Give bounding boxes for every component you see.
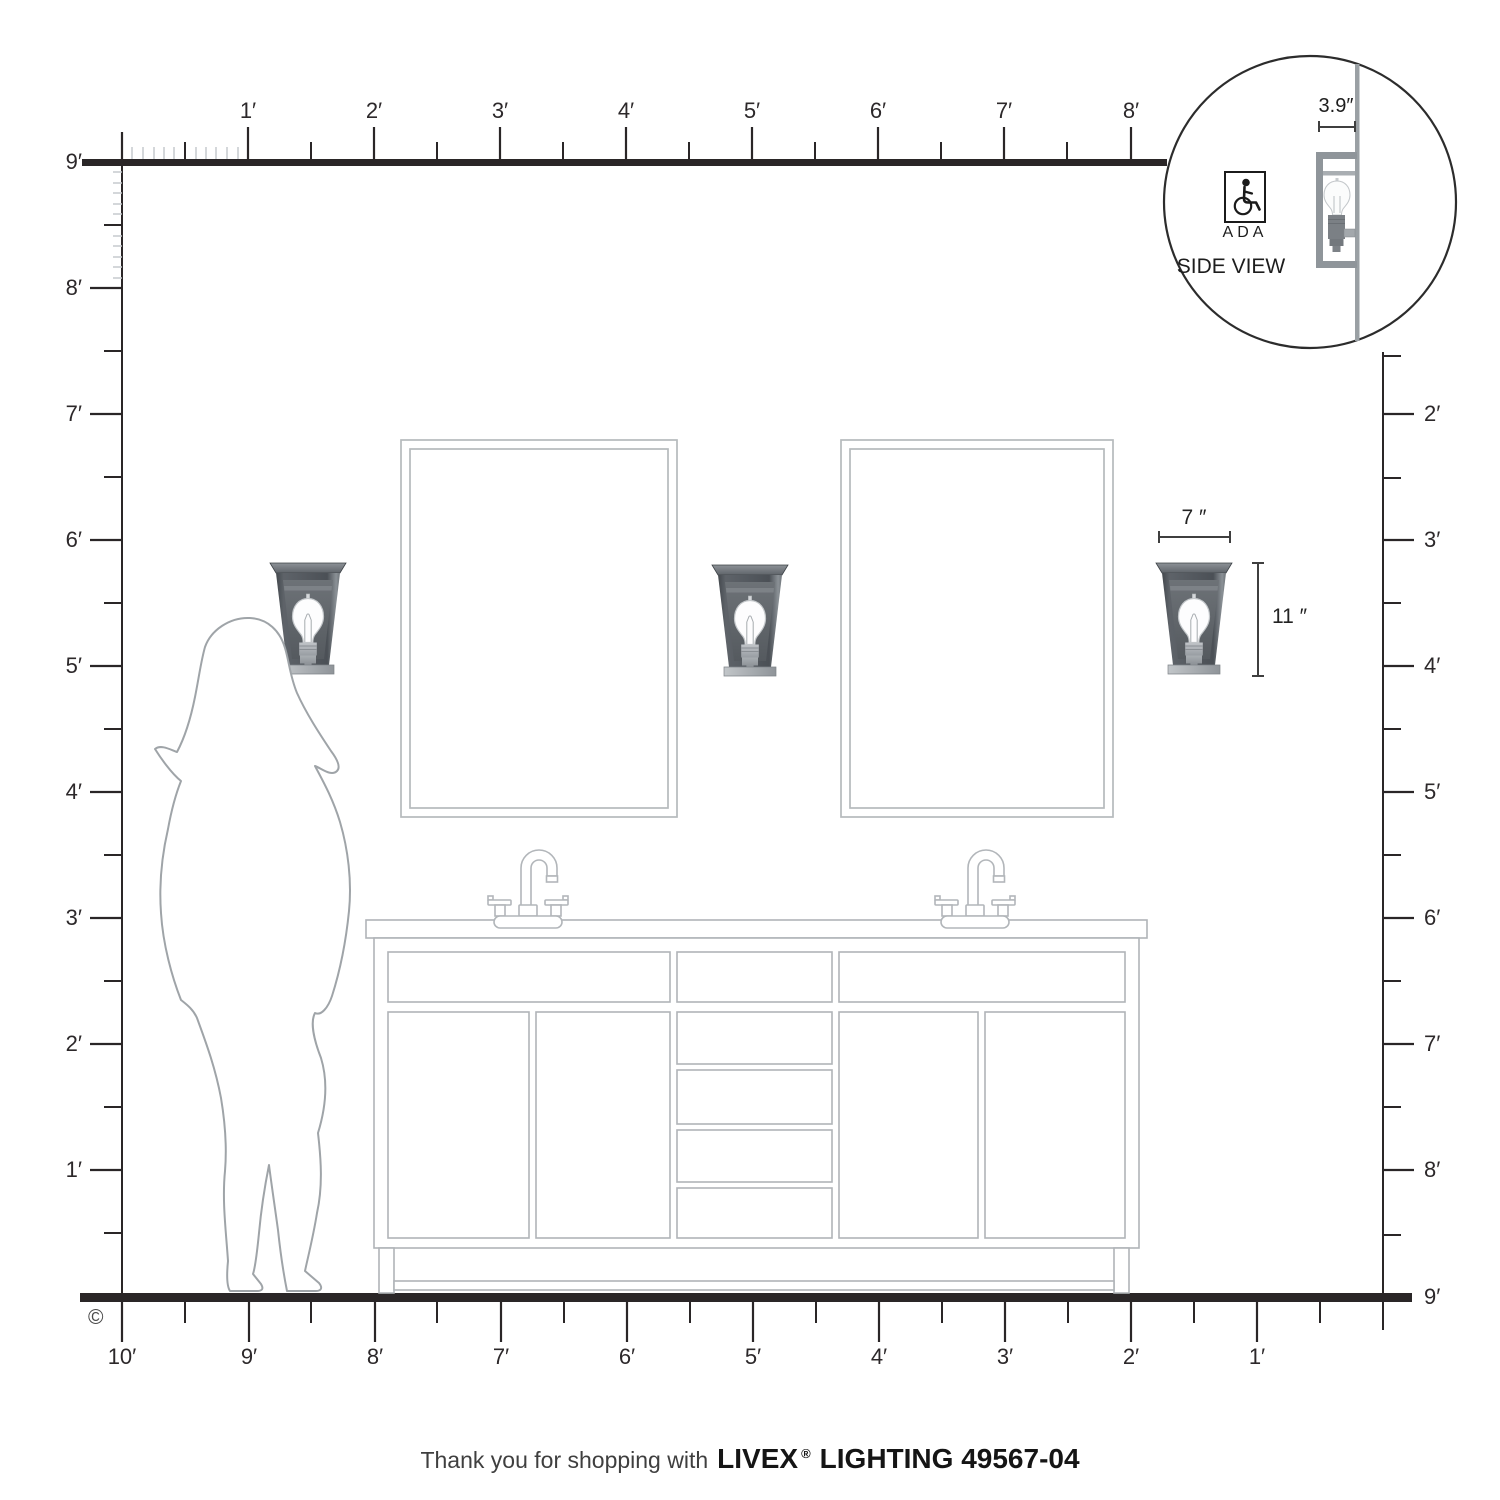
bottom-ruler-label: 5′ bbox=[725, 1344, 781, 1370]
left-ruler-label: 8′ bbox=[28, 275, 82, 301]
bottom-ruler bbox=[80, 1293, 1412, 1342]
brand-name: LIVEX bbox=[717, 1443, 798, 1475]
cabinet-door bbox=[536, 1012, 670, 1238]
dimension-diagram: 1′ 2′ 3′ 4′ 5′ 6′ 7′ 8′ 9′ 8′ 7′ 6′ 5′ 4… bbox=[0, 0, 1500, 1500]
right-ruler bbox=[1383, 352, 1414, 1330]
left-faucet bbox=[488, 850, 568, 928]
top-ruler-label: 5′ bbox=[727, 98, 777, 124]
cabinet-leg bbox=[379, 1248, 394, 1293]
floor-line bbox=[80, 1293, 1412, 1302]
left-ruler-label: 6′ bbox=[28, 527, 82, 553]
dimension-tick bbox=[1252, 675, 1264, 677]
left-ruler-label: 9′ bbox=[28, 149, 82, 175]
right-ruler-label: 6′ bbox=[1424, 905, 1484, 931]
right-mirror bbox=[841, 440, 1113, 817]
bottom-ruler-label: 3′ bbox=[977, 1344, 1033, 1370]
scene-drawing bbox=[0, 0, 1500, 1500]
top-ruler-label: 3′ bbox=[475, 98, 525, 124]
top-ruler-label: 8′ bbox=[1106, 98, 1156, 124]
footer-text: Thank you for shopping with bbox=[420, 1447, 708, 1474]
ceiling-line bbox=[82, 159, 1167, 166]
cabinet-door bbox=[388, 1012, 529, 1238]
ada-label: ADA bbox=[1215, 224, 1275, 242]
top-ruler bbox=[82, 127, 1167, 166]
left-ruler-label: 7′ bbox=[28, 401, 82, 427]
sconce-right bbox=[1156, 563, 1232, 674]
sconce-center bbox=[712, 565, 788, 676]
bottom-ruler-label: 10′ bbox=[94, 1344, 150, 1370]
top-ruler-label: 4′ bbox=[601, 98, 651, 124]
left-ruler-label: 5′ bbox=[28, 653, 82, 679]
bottom-ruler-label: 1′ bbox=[1229, 1344, 1285, 1370]
top-ruler-label: 6′ bbox=[853, 98, 903, 124]
right-ruler-label: 8′ bbox=[1424, 1157, 1484, 1183]
countertop bbox=[366, 920, 1147, 938]
dimension-tick bbox=[1158, 531, 1160, 543]
depth-dimension-line bbox=[1318, 126, 1356, 128]
right-faucet bbox=[935, 850, 1015, 928]
drawer bbox=[677, 1130, 832, 1182]
left-ruler-label: 3′ bbox=[28, 905, 82, 931]
fixture-width-label: 7 ″ bbox=[1164, 506, 1224, 530]
top-ruler-label: 1′ bbox=[223, 98, 273, 124]
width-dimension-line bbox=[1158, 536, 1231, 538]
bottom-ruler-label: 7′ bbox=[473, 1344, 529, 1370]
right-ruler-label: 7′ bbox=[1424, 1031, 1484, 1057]
left-mirror bbox=[401, 440, 677, 817]
right-ruler-label: 2′ bbox=[1424, 401, 1484, 427]
left-ruler bbox=[90, 132, 122, 1293]
dimension-tick bbox=[1252, 562, 1264, 564]
right-ruler-label: 4′ bbox=[1424, 653, 1484, 679]
right-ruler-label: 9′ bbox=[1424, 1284, 1484, 1310]
bottom-ruler-label: 8′ bbox=[347, 1344, 403, 1370]
left-ruler-label: 1′ bbox=[28, 1157, 82, 1183]
ada-compliance-icon bbox=[1225, 172, 1265, 222]
height-dimension-line bbox=[1257, 563, 1259, 677]
bottom-ruler-label: 4′ bbox=[851, 1344, 907, 1370]
fixture-height-label: 11 ″ bbox=[1272, 605, 1307, 629]
cabinet-stretcher bbox=[394, 1281, 1114, 1290]
bottom-ruler-label: 6′ bbox=[599, 1344, 655, 1370]
left-ruler-label: 4′ bbox=[28, 779, 82, 805]
product-number: LIGHTING 49567-04 bbox=[820, 1443, 1080, 1475]
wheelchair-icon bbox=[1242, 179, 1250, 187]
dimension-tick bbox=[1318, 121, 1320, 132]
bottom-ruler-label: 2′ bbox=[1103, 1344, 1159, 1370]
registered-mark: ® bbox=[801, 1446, 811, 1461]
dimension-tick bbox=[1354, 121, 1356, 132]
cabinet-door bbox=[839, 1012, 978, 1238]
vanity-cabinet bbox=[366, 920, 1147, 1293]
copyright-symbol: © bbox=[88, 1306, 103, 1330]
drawer bbox=[677, 1188, 832, 1238]
woman-silhouette bbox=[155, 618, 350, 1291]
left-ruler-label: 2′ bbox=[28, 1031, 82, 1057]
right-ruler-label: 5′ bbox=[1424, 779, 1484, 805]
side-view-label: SIDE VIEW bbox=[1170, 255, 1292, 279]
cabinet-door bbox=[985, 1012, 1125, 1238]
top-ruler-label: 7′ bbox=[979, 98, 1029, 124]
drawer bbox=[677, 1012, 832, 1064]
inset-depth-label: 3.9″ bbox=[1306, 95, 1366, 118]
top-ruler-label: 2′ bbox=[349, 98, 399, 124]
cabinet-leg bbox=[1114, 1248, 1129, 1293]
bottom-ruler-label: 9′ bbox=[221, 1344, 277, 1370]
dimension-tick bbox=[1229, 531, 1231, 543]
footer-message: Thank you for shopping with LIVEX ® LIGH… bbox=[0, 1443, 1500, 1475]
drawer bbox=[677, 1070, 832, 1124]
right-ruler-label: 3′ bbox=[1424, 527, 1484, 553]
